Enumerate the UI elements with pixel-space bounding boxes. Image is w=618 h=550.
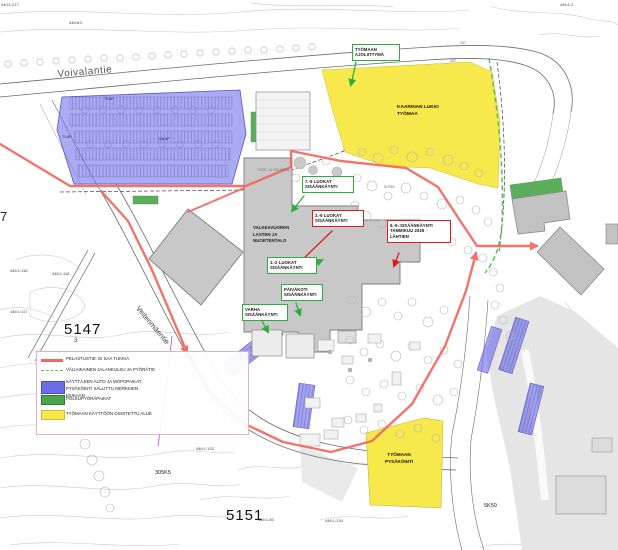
parking-count: 128 AP (158, 137, 170, 142)
paivakoti-building (286, 334, 314, 358)
diamond-building (149, 209, 243, 305)
parcel-label: 446:8:0 (69, 20, 82, 25)
terrace-block (256, 92, 310, 150)
east-building-2 (537, 227, 604, 295)
parcel-label: 446:1:132 (196, 446, 214, 451)
callout-tyomaan-ajoliittyma: TYÖMAAN AJOLIITTYMÄ (352, 44, 400, 61)
area-label-kaarinan-lukio: KAARINAN LUKIO TYÖMAA (397, 105, 439, 119)
southeast-building (556, 476, 606, 514)
parcel-label: 440:1:217 (1, 2, 19, 7)
parking-count: 73 AP (104, 97, 114, 102)
area-label-tyomaan-pysakointi: TYÖMAAN PYSÄKÖINTI (385, 452, 413, 465)
parking-count: 71 AP (62, 135, 72, 140)
callout-sisaankaynti-5-9: 5.-9. SISÄÄNKÄYNTI TAMMIKUU 2026 LÄHTIEN (387, 220, 451, 243)
block-number-5147: 5147 (64, 320, 101, 340)
callout-varha: VARHA SISÄÄNKÄYNTI (242, 304, 288, 321)
legend-label: TYÖMAAN KÄYTTÖÖN OSOITETTU ALUE (66, 411, 152, 418)
parcel-label: 446:1:134 (325, 518, 343, 523)
rescue-route-link (188, 188, 244, 212)
edge-building (606, 224, 618, 244)
legend-swatch-green-dashed-line (41, 370, 63, 371)
east-building-1 (512, 191, 570, 234)
legend-label: VÄLIAIKAINEN JALANKULKU JA PYÖRÄTIE (66, 367, 155, 374)
worksite-area-lukio (322, 62, 500, 188)
building-label-valkeavuoren: VALKEAVUOREN LASTEN JA NUORTENTALO (253, 225, 289, 245)
parcel-label: 446:1:116 (52, 271, 70, 276)
legend-label: PELASTUSTIE. EI SAA TUKKIA (66, 356, 129, 363)
callout-luokat-1-2: 1.-2 LUOKAT SISÄÄNKÄYNTI (267, 257, 317, 274)
parcel-label: 446:1:46 (258, 517, 274, 522)
parcel-label: 446:1:2 (560, 2, 573, 7)
map-legend: PELASTUSTIE. EI SAA TUKKIA VÄLIAIKAINEN … (36, 351, 249, 435)
block-subnumber-3: 3 (74, 338, 77, 346)
parcel-label: 446:1:118 (10, 268, 28, 273)
block-number-5151: 5151 (226, 506, 263, 526)
block-number-305K5: 305K5 (155, 470, 171, 477)
legend-swatch-blue-area (41, 381, 65, 394)
callout-paivakoti: PÄIVÄKOTI SISÄÄNKÄYNTI (281, 284, 323, 301)
small-label-nurmi: NURMI (384, 185, 394, 189)
parcel-label: 446:1:117 (10, 309, 28, 314)
legend-swatch-red-line (41, 359, 63, 362)
block-number-5K50: 5K50 (484, 503, 497, 510)
callout-luokat-7-9: 7.-9 LUOKAT SISÄÄNKÄYNTI (302, 176, 354, 193)
varha-building (252, 330, 282, 356)
road-number: 247 (460, 41, 466, 46)
site-plan-map: 440:1:217 446:8:0 Voivalantie 247 247 44… (0, 0, 618, 550)
legend-swatch-green-area (41, 395, 65, 405)
trees-voivalantie (5, 44, 315, 67)
legend-swatch-yellow-area (41, 410, 65, 420)
map-canvas (0, 0, 618, 550)
parking-area-blue (57, 90, 246, 184)
small-label-tiede-piha: TIEDE- JA TAIDEPIHA (257, 168, 289, 172)
block-number-7: 7 (0, 209, 7, 226)
road-number: 247 (450, 59, 456, 64)
legend-label: POLKUPYÖRÄPAIKAT (66, 396, 111, 403)
callout-luokat-3-6: 3.-6 LUOKAT SISÄÄNKÄYNTI (312, 210, 364, 227)
